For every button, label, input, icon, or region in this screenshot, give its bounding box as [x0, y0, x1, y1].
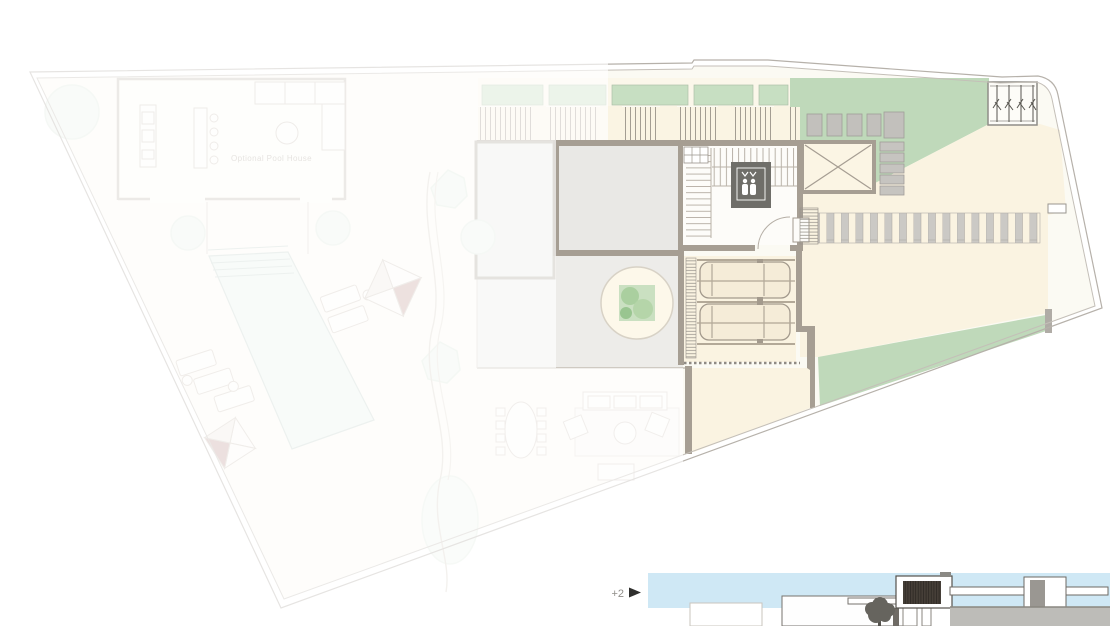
annex-volume: [690, 603, 762, 626]
window: [903, 608, 917, 626]
car-lift-platform-edge: [686, 258, 696, 358]
grid-window: [684, 147, 708, 163]
louvre-window: [903, 581, 941, 604]
planter-column: [880, 142, 904, 195]
roof-structure: [1024, 577, 1066, 608]
room-b: [559, 146, 678, 250]
window: [922, 608, 931, 626]
car-top: [700, 259, 790, 301]
skylight-box: [802, 142, 874, 192]
elevator: [731, 162, 771, 208]
courtyard-tree: [601, 267, 673, 339]
car-top: [700, 301, 790, 343]
garden-wall: [950, 607, 1110, 626]
level-label: +2: [611, 588, 624, 600]
site-plan-svg: Optional Pool House: [0, 0, 1110, 626]
paving-strips: [818, 213, 1040, 243]
stair-hall: [683, 140, 809, 251]
architectural-drawing-page: Optional Pool House: [0, 0, 1110, 626]
rear-courtyard: [685, 366, 810, 454]
trellis-planter: [988, 82, 1037, 125]
lawn-planter-squares: [807, 112, 904, 138]
entry-steps: [800, 208, 818, 244]
elevation-drawing: +2: [611, 572, 1110, 626]
upper-volume: [896, 572, 952, 608]
